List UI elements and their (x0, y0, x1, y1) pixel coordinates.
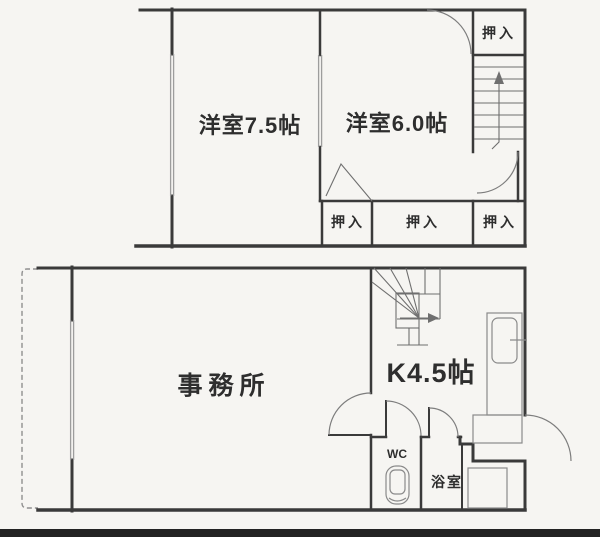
door-wc (386, 401, 421, 437)
west-wall-office (71, 267, 74, 511)
wc-label: WC (387, 447, 407, 461)
door-arc-office (329, 393, 371, 435)
closet-bottom-left-label: 押入 (331, 214, 365, 230)
door-arc-bath (429, 408, 458, 437)
first-floor-plan: 事務所 K4.5帖 WC 浴室 (22, 267, 571, 511)
room75-label: 洋室7.5帖 (199, 113, 302, 138)
corner-door-marker (326, 164, 372, 201)
window-room75 (171, 54, 174, 196)
staircase-upper (474, 67, 524, 149)
toilet-bowl-rim (389, 498, 406, 501)
entrance-step-wall (460, 437, 525, 461)
divider-wall-rooms (319, 10, 322, 201)
second-floor-plan: 洋室7.5帖 洋室6.0帖 押入 押入 押入 押入 (136, 9, 525, 247)
door-arc-wc (386, 401, 421, 437)
door-stair-landing (477, 152, 518, 201)
balcony-outline (22, 269, 38, 508)
bath-label: 浴室 (431, 474, 463, 490)
kitchen-label: K4.5帖 (386, 358, 475, 388)
bottom-band (0, 529, 600, 537)
kitchen-counter (487, 313, 527, 415)
door-bath (429, 408, 458, 437)
door-arc-entrance (525, 415, 571, 461)
west-wall-room75 (171, 9, 174, 247)
closet-bottom-right-label: 押入 (483, 214, 517, 230)
entrance-floor (468, 468, 507, 508)
room60-label: 洋室6.0帖 (346, 111, 449, 136)
closet-top-right-label: 押入 (482, 25, 516, 41)
office-label: 事務所 (177, 372, 270, 400)
toilet-icon (386, 466, 409, 504)
closet-bottom-middle-label: 押入 (406, 214, 440, 230)
stairs-up-arrow-icon (492, 71, 504, 149)
staircase-lower (372, 268, 440, 345)
window-office (71, 320, 74, 460)
floorplan-page: 洋室7.5帖 洋室6.0帖 押入 押入 押入 押入 (0, 0, 600, 537)
door-arc-stair-landing (477, 152, 518, 193)
door-arc-room60-north (427, 10, 471, 54)
floorplan-canvas: 洋室7.5帖 洋室6.0帖 押入 押入 押入 押入 (0, 0, 600, 537)
entrance-upper-step (473, 415, 522, 443)
sliding-door-between-rooms (319, 55, 322, 147)
door-office (329, 393, 371, 435)
toilet-bowl-inner (390, 470, 405, 494)
